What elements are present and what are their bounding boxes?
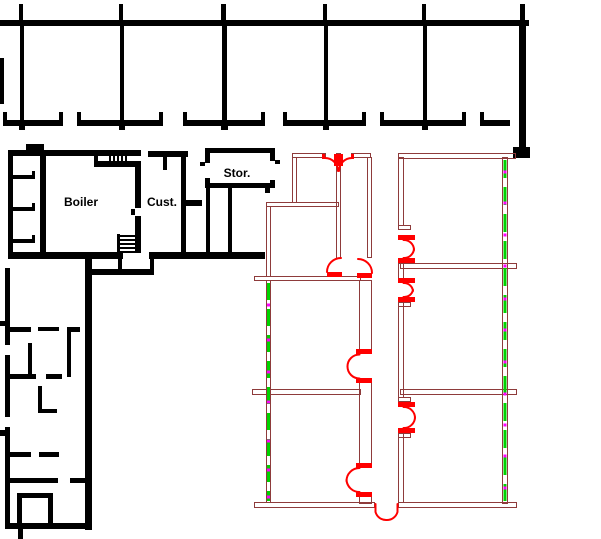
stair-rungs-icon (117, 234, 135, 254)
existing-walls-boiler-block (8, 144, 280, 275)
room-label-boiler: Boiler (64, 195, 98, 209)
door-thresholds (322, 154, 415, 497)
room-label-custodian: Cust. (147, 195, 177, 209)
wall-rating-overlay-dots (267, 170, 507, 498)
existing-walls-lower-left-block (0, 253, 92, 539)
storage-room-walls (200, 148, 280, 253)
room-label-storage: Stor. (224, 166, 251, 180)
wall-rating-overlay-dashes (269, 160, 506, 501)
existing-walls-north-classroom-wing (0, 4, 530, 158)
floor-plan-canvas: Boiler Cust. Stor. (0, 0, 601, 539)
new-construction-walls (253, 154, 517, 508)
floor-plan-page: Boiler Cust. Stor. (0, 0, 601, 539)
